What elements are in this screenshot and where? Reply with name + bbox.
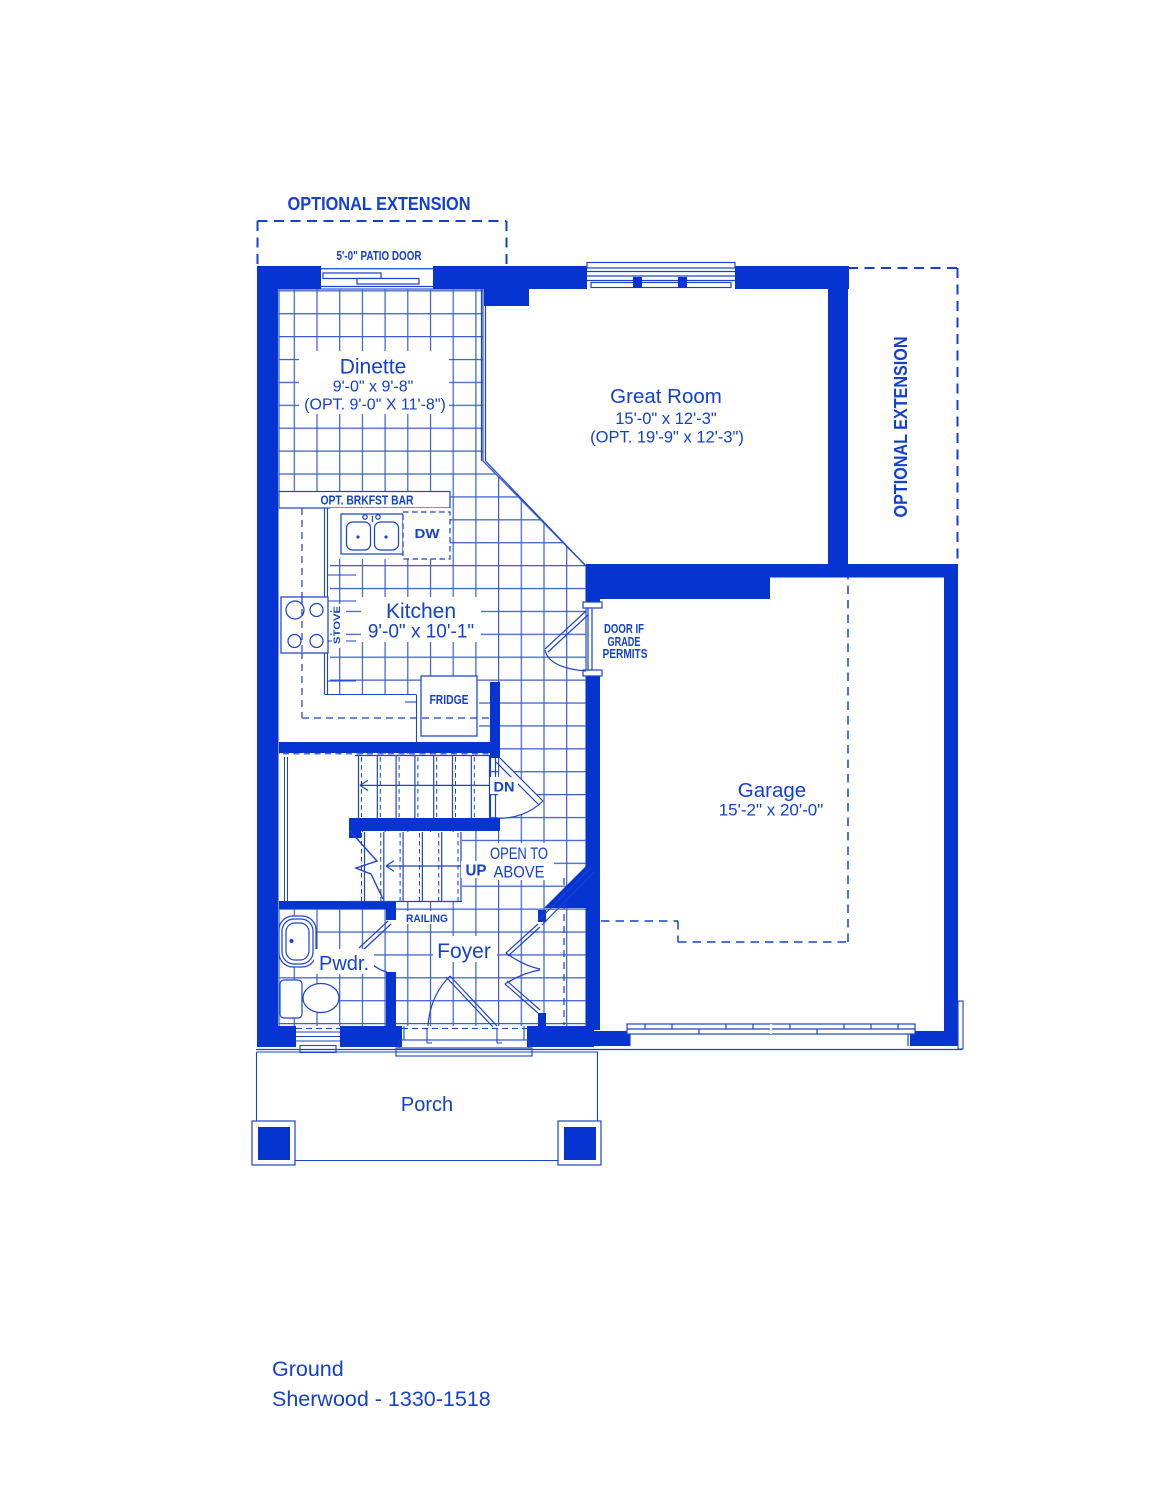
svg-text:(OPT. 9'-0" X 11'-8"): (OPT. 9'-0" X 11'-8") (304, 397, 446, 414)
svg-text:UP: UP (466, 863, 487, 880)
svg-text:OPEN TO: OPEN TO (490, 845, 548, 863)
svg-text:Dinette: Dinette (340, 356, 407, 379)
svg-text:Garage: Garage (738, 779, 806, 802)
svg-text:Porch: Porch (401, 1094, 453, 1116)
svg-text:ABOVE: ABOVE (494, 864, 545, 882)
svg-text:FRIDGE: FRIDGE (430, 693, 469, 707)
svg-text:OPT. BRKFST BAR: OPT. BRKFST BAR (321, 493, 414, 508)
svg-text:Ground: Ground (272, 1357, 344, 1381)
svg-text:5'-0" PATIO DOOR: 5'-0" PATIO DOOR (337, 249, 422, 263)
svg-text:Sherwood - 1330-1518: Sherwood - 1330-1518 (272, 1387, 491, 1411)
svg-text:9'-0" x 9'-8": 9'-0" x 9'-8" (333, 379, 414, 396)
svg-text:RAILING: RAILING (406, 913, 448, 925)
svg-text:DN: DN (494, 779, 515, 795)
svg-text:15'-2" x 20'-0": 15'-2" x 20'-0" (719, 801, 824, 820)
svg-text:STOVE: STOVE (332, 606, 343, 644)
svg-text:OPTIONAL EXTENSION: OPTIONAL EXTENSION (891, 337, 911, 518)
svg-text:Foyer: Foyer (437, 940, 491, 963)
svg-text:(OPT. 19'-9" x 12'-3"): (OPT. 19'-9" x 12'-3") (590, 429, 744, 447)
svg-text:Pwdr.: Pwdr. (319, 953, 369, 975)
svg-text:9'-0" x 10'-1": 9'-0" x 10'-1" (368, 622, 474, 643)
svg-text:Great Room: Great Room (610, 385, 722, 408)
svg-text:DOOR IF: DOOR IF (604, 622, 644, 636)
svg-text:DW: DW (415, 527, 440, 541)
svg-text:Kitchen: Kitchen (386, 600, 456, 623)
svg-text:PERMITS: PERMITS (603, 647, 648, 661)
svg-text:15'-0" x 12'-3": 15'-0" x 12'-3" (615, 410, 717, 428)
svg-text:OPTIONAL EXTENSION: OPTIONAL EXTENSION (288, 194, 471, 214)
